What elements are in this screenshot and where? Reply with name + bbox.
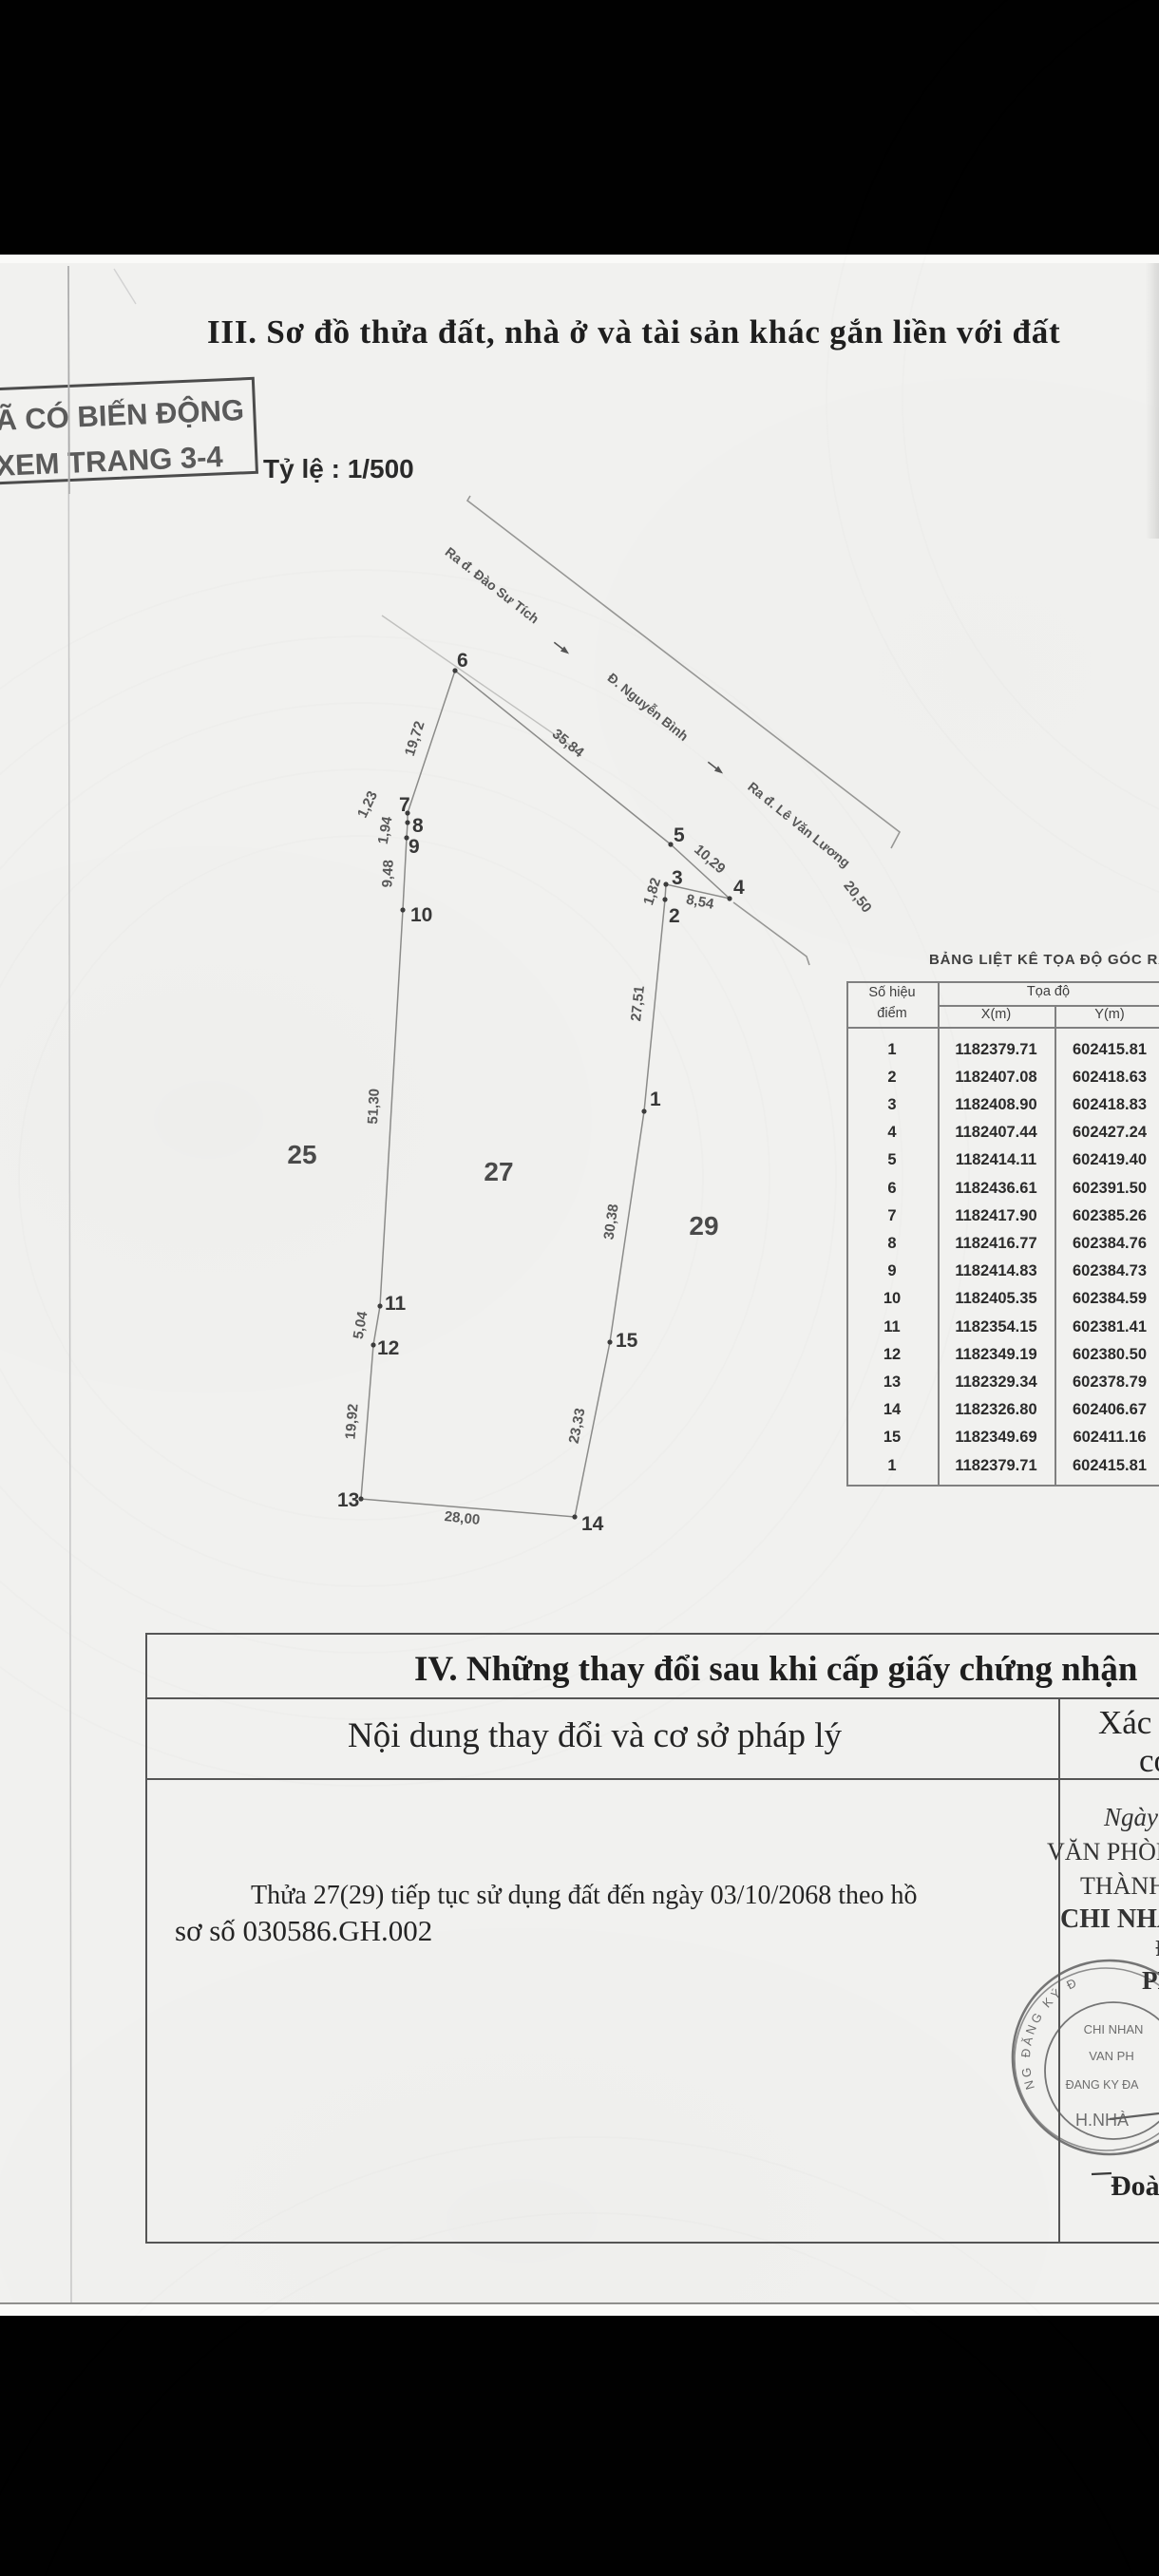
svg-text:28,00: 28,00	[444, 1508, 481, 1528]
svg-text:5: 5	[674, 824, 685, 846]
svg-text:27,51: 27,51	[628, 985, 648, 1022]
svg-text:1,23: 1,23	[354, 788, 381, 821]
svg-text:15: 15	[616, 1330, 638, 1352]
svg-text:1,82: 1,82	[640, 876, 664, 907]
svg-text:8: 8	[412, 815, 424, 837]
svg-text:6: 6	[457, 650, 468, 672]
svg-text:10,29: 10,29	[691, 842, 728, 877]
svg-text:13: 13	[337, 1489, 359, 1511]
svg-text:3: 3	[672, 867, 683, 889]
svg-text:2: 2	[669, 905, 680, 927]
svg-text:29: 29	[689, 1211, 718, 1241]
svg-text:1: 1	[650, 1089, 661, 1110]
svg-text:23,33: 23,33	[566, 1407, 589, 1445]
svg-text:30,38: 30,38	[601, 1203, 622, 1241]
svg-text:10: 10	[410, 904, 432, 926]
svg-text:14: 14	[581, 1513, 604, 1535]
svg-text:20,50: 20,50	[840, 878, 875, 916]
svg-text:Ra đ. Lê Văn Lương: Ra đ. Lê Văn Lương	[745, 779, 853, 871]
svg-text:Ra đ. Đào Sư Tích: Ra đ. Đào Sư Tích	[443, 544, 542, 627]
svg-text:11: 11	[385, 1293, 407, 1315]
svg-text:7: 7	[399, 794, 410, 816]
svg-text:9: 9	[408, 836, 420, 858]
svg-text:12: 12	[377, 1337, 399, 1359]
svg-text:1,94: 1,94	[375, 815, 396, 845]
svg-text:19,92: 19,92	[342, 1403, 361, 1440]
svg-text:4: 4	[733, 877, 745, 899]
svg-text:Đ. Nguyễn Bình: Đ. Nguyễn Bình	[605, 670, 692, 744]
svg-text:27: 27	[484, 1157, 513, 1186]
svg-text:19,72: 19,72	[402, 719, 428, 758]
svg-text:51,30: 51,30	[365, 1089, 383, 1125]
svg-text:5,04: 5,04	[351, 1310, 371, 1340]
svg-text:25: 25	[287, 1140, 316, 1169]
svg-text:9,48: 9,48	[379, 860, 397, 888]
